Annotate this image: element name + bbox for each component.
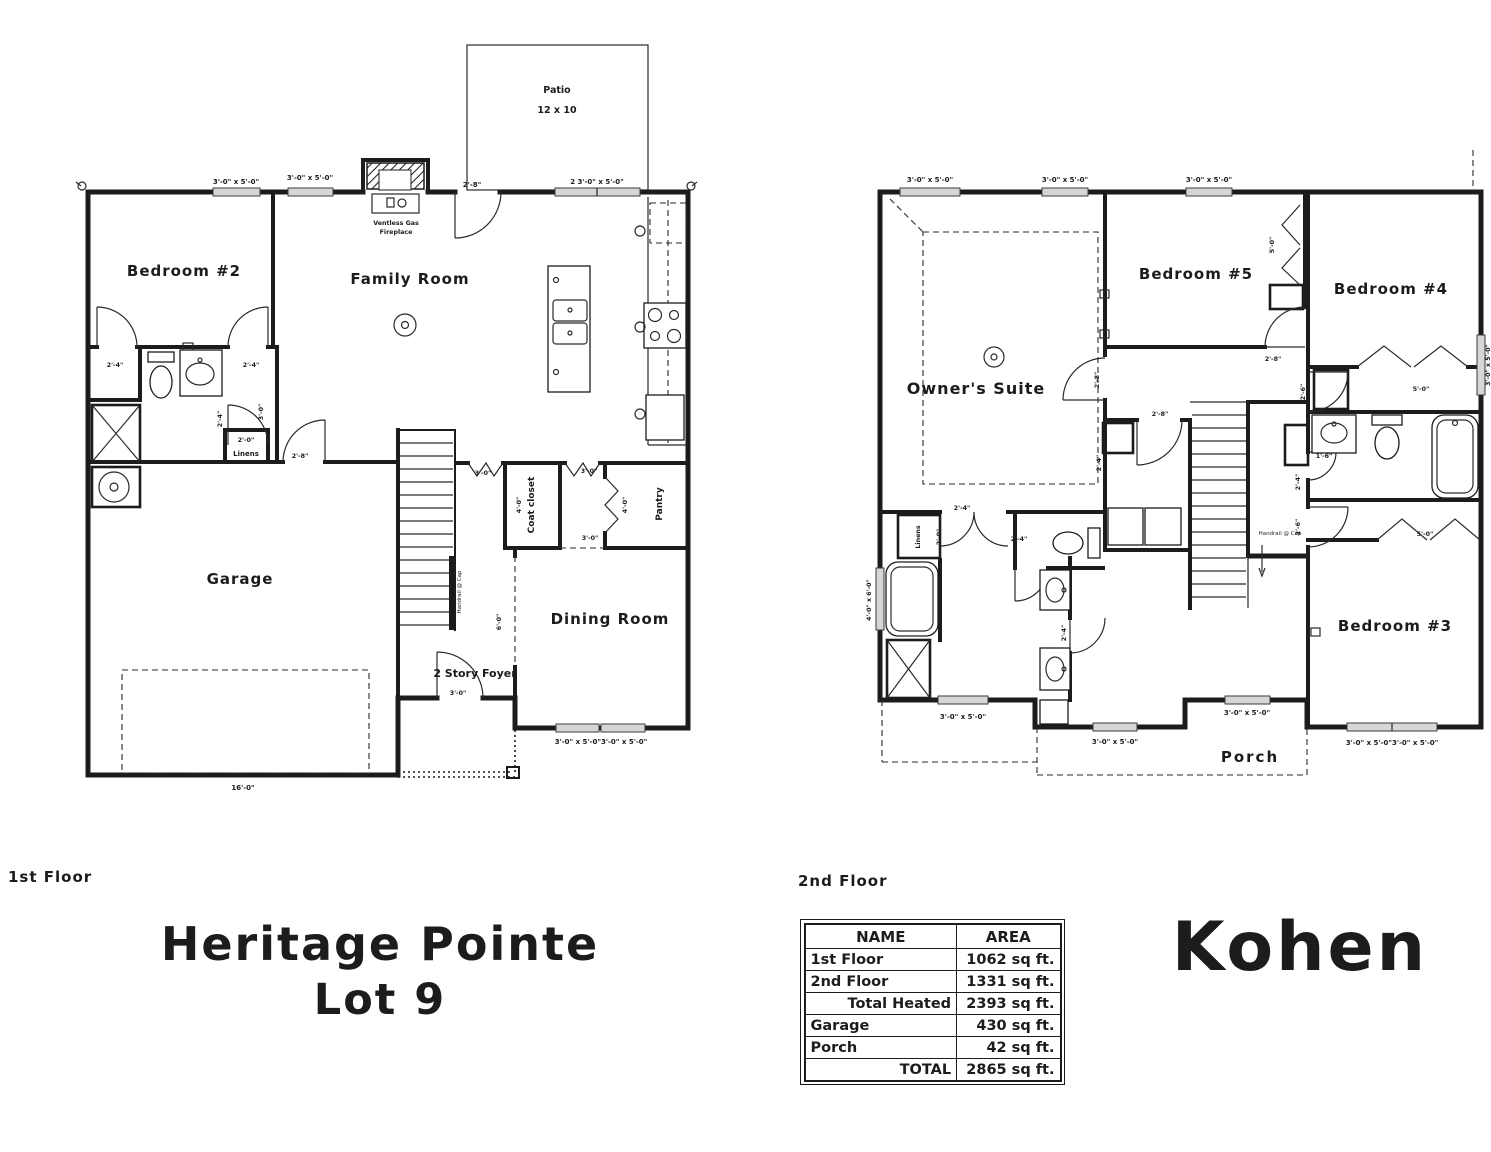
area-table-header-row: NAME AREA (806, 925, 1060, 948)
floor1-stairs: Handrail @ Cap (398, 430, 463, 630)
floor2-stairs: Handrail @ Cap (1190, 402, 1307, 608)
toilet (150, 366, 172, 398)
community-title: Heritage Pointe (120, 916, 640, 974)
toilet (1053, 532, 1083, 554)
dim-label: 5'-0" (1413, 386, 1430, 393)
table-row: Garage 430 sq ft. (806, 1014, 1060, 1036)
area-table: NAME AREA 1st Floor 1062 sq ft. 2nd Floo… (800, 919, 1065, 1085)
fireplace: Ventless Gas Fireplace (367, 163, 424, 236)
row-name: Porch (806, 1037, 958, 1058)
ceiling-fan (394, 314, 416, 336)
lot-title: Lot 9 (120, 974, 640, 1028)
window-dim: 3'-0" x 5'-0" (287, 174, 333, 182)
dim-label: 2'-4" (243, 362, 260, 369)
plan-name-title: Kohen (1135, 908, 1465, 987)
row-name: TOTAL (806, 1059, 958, 1080)
floor1-plan: Patio 12 x 10 Ventless Gas Fireplace 3'-… (0, 0, 760, 840)
row-area: 2865 sq ft. (957, 1059, 1059, 1080)
dim-label: 2'-4" (1061, 625, 1068, 642)
window-dim: 3'-0" x 5'-0" (1092, 738, 1138, 746)
row-area: 2393 sq ft. (957, 993, 1059, 1014)
dim-label: 2'-4" (1096, 455, 1103, 472)
row-area: 1062 sq ft. (957, 949, 1059, 970)
bedroom2-label: Bedroom #2 (127, 262, 241, 280)
window-dim: 3'-0" x 5'-0" (1224, 709, 1270, 717)
floor2-room-labels: Owner's Suite Bedroom #5 Bedroom #4 Bedr… (907, 265, 1452, 635)
dim-label: 3'-0" (582, 535, 599, 542)
dim-label: 2'-8" (292, 453, 309, 460)
foyer-label: 2 Story Foyer (433, 667, 517, 680)
dim-label: 2'-4" (217, 411, 224, 428)
bedroom4-label: Bedroom #4 (1334, 280, 1448, 298)
garage-door-dim: 16'-0" (231, 784, 254, 792)
floor2-sheet-label: 2nd Floor (798, 872, 887, 890)
patio-outline: Patio 12 x 10 (467, 45, 648, 190)
row-name: 2nd Floor (806, 971, 958, 992)
window-dim: 3'-0" x 5'-0" (1186, 176, 1232, 184)
row-area: 1331 sq ft. (957, 971, 1059, 992)
floor1-exterior-walls (88, 160, 688, 775)
washer (1108, 508, 1143, 545)
dim-label: 3'-0" (258, 404, 265, 421)
dim-label: 6'-0" (496, 614, 503, 631)
table-row: 2nd Floor 1331 sq ft. (806, 970, 1060, 992)
table-row: 1st Floor 1062 sq ft. (806, 948, 1060, 970)
kitchen-fixtures (548, 197, 688, 445)
floor2-plan: 3'-0" x 5'-0" 3'-0" x 5'-0" 3'-0" x 5'-0… (860, 140, 1491, 820)
toilet (1375, 427, 1399, 459)
window-dim: 3'-0" x 5'-0"3'-0" x 5'-0" (555, 738, 648, 746)
floorplan-sheet: Patio 12 x 10 Ventless Gas Fireplace 3'-… (0, 0, 1491, 1152)
row-name: Total Heated (806, 993, 958, 1014)
row-name: 1st Floor (806, 949, 958, 970)
dim-label: 4'-0" (622, 497, 629, 514)
dim-label: 2'-0" (936, 529, 943, 546)
row-area: 42 sq ft. (957, 1037, 1059, 1058)
fireplace-label-1: Ventless Gas (373, 220, 419, 227)
dim-label: 3'-0" (475, 470, 492, 477)
dim-label: 2'-4" (1011, 536, 1028, 543)
window-dim: 3'-0" x 5'-0" (1485, 344, 1491, 386)
title-block: Heritage Pointe Lot 9 (120, 916, 640, 1027)
dining-room-label: Dining Room (551, 610, 670, 628)
coat-closet-label: Coat closet (527, 476, 537, 533)
area-table-header-name: NAME (806, 925, 958, 948)
window-dim: 3'-0" x 5'-0" (1042, 176, 1088, 184)
family-room-label: Family Room (350, 270, 469, 288)
dim-label: 2'-4" (954, 505, 971, 512)
dim-label: 1'-6" (1316, 453, 1333, 460)
door-dim: 2'-8" (463, 181, 481, 189)
fireplace-label-2: Fireplace (380, 229, 413, 236)
window-dim: 2 3'-0" x 5'-0" (570, 178, 624, 186)
bedroom5-label: Bedroom #5 (1139, 265, 1253, 283)
patio-label: Patio (543, 85, 571, 96)
pantry-label: Pantry (655, 487, 665, 521)
window-dim: 3'-0" x 5'-0" (213, 178, 259, 186)
dim-label: 2'-8" (1265, 356, 1282, 363)
floor2-fixtures (886, 347, 1478, 724)
dim-label: 5'-0" (1269, 237, 1276, 254)
window-dim: 3'-0" x 5'-0" (940, 713, 986, 721)
table-row: TOTAL 2865 sq ft. (806, 1058, 1060, 1080)
porch-label: Porch (1221, 748, 1279, 766)
dim-label: 2'-6" (1300, 384, 1307, 401)
window-dim: 3'-0" x 5'-0"3'-0" x 5'-0" (1346, 739, 1439, 747)
floor1-porch (398, 730, 519, 778)
tray-ceiling (890, 199, 1098, 484)
floor1-bath-fixtures (92, 350, 222, 507)
dim-label: 2'-6" (1295, 519, 1302, 536)
row-area: 430 sq ft. (957, 1015, 1059, 1036)
linens-label: Linens (233, 450, 259, 458)
floor2-windows: 3'-0" x 5'-0" 3'-0" x 5'-0" 3'-0" x 5'-0… (866, 176, 1491, 747)
bedroom3-label: Bedroom #3 (1338, 617, 1452, 635)
patio-size-label: 12 x 10 (537, 105, 577, 116)
dim-label: 2'-0" (238, 437, 255, 444)
dim-label: 2'-8" (1094, 372, 1101, 389)
garden-tub (886, 562, 938, 636)
garage-label: Garage (207, 570, 274, 588)
dim-label: 2'-8" (1152, 411, 1169, 418)
dim-label: 3'-0" (450, 690, 467, 697)
dim-label: 2'-4" (1295, 474, 1302, 491)
row-name: Garage (806, 1015, 958, 1036)
window-dim: 3'-0" x 5'-0" (907, 176, 953, 184)
dim-label: 3'-0" (581, 468, 598, 475)
tub-dim: 4'-0" x 6'-0" (866, 579, 873, 621)
vanity-sink (1312, 415, 1356, 453)
dryer (1145, 508, 1181, 545)
floor1-sheet-label: 1st Floor (8, 868, 92, 886)
bathtub (1432, 415, 1478, 498)
table-row: Porch 42 sq ft. (806, 1036, 1060, 1058)
handrail-note: Handrail @ Cap (457, 570, 463, 613)
dim-label: 5'-0" (1417, 531, 1434, 538)
area-table-header-area: AREA (957, 925, 1059, 948)
owners-suite-label: Owner's Suite (907, 379, 1045, 398)
table-row: Total Heated 2393 sq ft. (806, 992, 1060, 1014)
dim-label: 4'-0" (516, 497, 523, 514)
floor1-dim-labels: 2'-4" 2'-4" 2'-4" 2'-0" 3'-0" 2'-8" 3'-0… (107, 362, 629, 697)
dim-label: 2'-4" (107, 362, 124, 369)
linens-label: Linens (915, 525, 922, 548)
